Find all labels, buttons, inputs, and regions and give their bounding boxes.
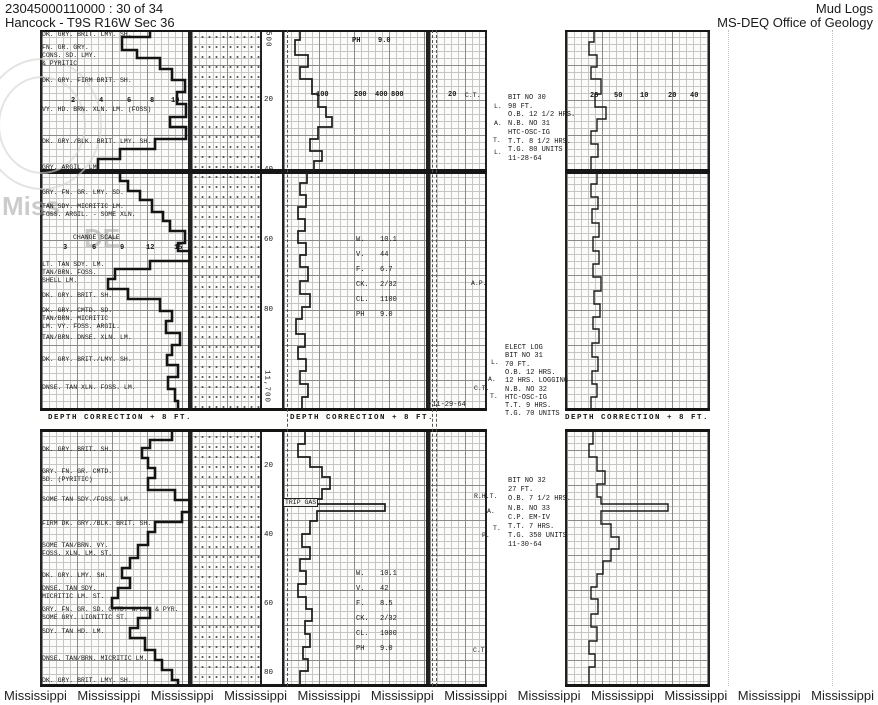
lithology-upper-curve (98, 31, 190, 408)
gas-scale-tick: 10 (171, 97, 179, 105)
ph-label: PH (352, 37, 360, 45)
bit-record-line: 11-28-64 (508, 155, 542, 163)
gas-scale-tick: 400 (375, 91, 388, 99)
gas-scale-tick: 6 (127, 97, 131, 105)
lithology-description: DK. GRY. BRIT. SH. (42, 446, 112, 453)
chromatograph-scale-tick: 20 (448, 91, 456, 99)
bit-record-line: O.B. 12 HRS. (505, 369, 555, 377)
mud-property-value: 6.7 (380, 266, 393, 274)
mud-property-label: W. (356, 236, 380, 244)
bit-record-line: HTC-OSC-IG (505, 394, 547, 402)
bit-record-line: 27 FT. (508, 486, 533, 494)
mud-property-row: W.10.1 (356, 570, 397, 578)
lithology-description: DK. GRY. BRIT. LMY. SH. (42, 31, 132, 38)
bit-record-line: ELECT LOG (505, 344, 543, 352)
mud-property-row: CK.2/32 (356, 281, 397, 289)
lithology-description: GRY. FN. GR. SD. CMTD. W/LM. & PYR. (42, 606, 179, 613)
gas-scale-tick: 12 (146, 244, 154, 252)
lithology-description: TAN/BRN. DNSE. XLN. LM. (42, 334, 132, 341)
mud-property-value: 2/32 (380, 615, 397, 623)
margin-marker: R.H.T. (474, 493, 497, 500)
mud-property-label: PH (356, 311, 380, 319)
lithology-description: SHELL LM. (42, 277, 77, 284)
bit-record-line: 12 HRS. LOGGING (505, 377, 568, 385)
lithology-description: TAN/BRN. FOSS. (42, 269, 97, 276)
date-annotation: -11-29-64 (428, 401, 466, 409)
mud-property-row: W.10.1 (356, 236, 397, 244)
log-area: DK. GRY. BRIT. LMY. SH.FN. GR. GRY.CONS.… (0, 0, 878, 705)
lithology-description: FOSS. XLN. LM. ST. (42, 550, 112, 557)
lithology-description: DK. GRY./BLK. BRIT. LMY. SH. (42, 138, 151, 145)
bit-record-line: N.B. NO 33 (508, 505, 550, 513)
lithology-description: DK. GRY. CMTD. SD. (42, 307, 112, 314)
lithology-description: GRY. FN. GR. CMTD. (42, 468, 112, 475)
depth-label: 40 (264, 166, 273, 175)
mud-property-row: V.42 (356, 585, 388, 593)
depth-correction-label: DEPTH CORRECTION + 8 FT. (565, 414, 709, 423)
mud-property-value: 8.5 (380, 600, 393, 608)
depth-correction-label: DEPTH CORRECTION + 8 FT. (290, 414, 434, 423)
gas-scale-tick: 800 (391, 91, 404, 99)
mud-property-label: F. (356, 266, 380, 274)
depth-label: 40 (264, 531, 273, 540)
depth-label: 11,700 (262, 370, 271, 403)
lithology-description: VY. HD. BRN. XLN. LM. (FOSS) (42, 106, 151, 113)
right-scale-tick: 20 (668, 92, 676, 100)
depth-label: 20 (264, 462, 273, 471)
lithology-description: SDY. TAN HD. LM. (42, 628, 104, 635)
depth-label: 80 (264, 669, 273, 678)
depth-label: 80 (264, 306, 273, 315)
lithology-description: LT. TAN SDY. LM. (42, 261, 104, 268)
bit-record-line: N.B. NO 31 (508, 120, 550, 128)
lithology-description: DK. GRY. BRIT. LMY. SH. (42, 677, 132, 684)
bit-record-line: T.T. 9 HRS. (505, 402, 551, 410)
right-scale-tick: 10 (640, 92, 648, 100)
lithology-description: DNSE. TAN/BRN. MICRITIC LM. (42, 655, 147, 662)
lithology-description: DK. GRY. FIRM BRIT. SH. (42, 77, 132, 84)
gas-scale-tick: 100 (316, 91, 329, 99)
mud-property-label: PH (356, 645, 380, 653)
lithology-description: DNSE. TAN XLN. FOSS. LM. (42, 384, 136, 391)
mud-property-value: 44 (380, 251, 388, 259)
lithology-description: FOSS. ARGIL. - SOME XLN. (42, 211, 136, 218)
bit-record-line: T.T. 8 1/2 HRS. (508, 138, 571, 146)
bit-record-line: O.B. 12 1/2 HRS. (508, 111, 575, 119)
bit-record-line: 11-30-64 (508, 541, 542, 549)
lithology-description: LM. VY. FOSS. ARGIL. (42, 323, 120, 330)
bit-record-line: N.B. NO 32 (505, 386, 547, 394)
margin-marker: T. (490, 393, 498, 400)
margin-marker: A. (488, 376, 496, 383)
mud-property-row: CK.2/32 (356, 615, 397, 623)
mud-property-row: F.8.5 (356, 600, 393, 608)
trip-gas-label: TRIP GAS (283, 498, 318, 507)
lithology-description: SD. (PYRITIC) (42, 476, 93, 483)
lithology-description: DK. GRY. BRIT. SH. (42, 292, 112, 299)
mud-property-label: CL. (356, 630, 380, 638)
gas-scale-tick: 2 (71, 97, 75, 105)
gas-scale-tick: 15 (174, 244, 182, 252)
lithology-description: DK. GRY. LMY. SH. (42, 572, 108, 579)
mud-property-label: CK. (356, 615, 380, 623)
mud-property-value: 2/32 (380, 281, 397, 289)
mud-property-value: 10.1 (380, 236, 397, 244)
right-lower-curve (589, 432, 668, 686)
mud-property-value: 10.1 (380, 570, 397, 578)
lithology-description: TAN SDY. MICRITIC LM. (42, 203, 124, 210)
lithology-description: & PYRITIC (42, 60, 77, 67)
margin-marker: C.T. (473, 647, 489, 654)
margin-marker: A. (487, 508, 495, 515)
lithology-description: SOME TAN/BRN. VY. (42, 542, 108, 549)
mud-property-row: F.6.7 (356, 266, 393, 274)
mud-property-label: CL. (356, 296, 380, 304)
mud-property-label: W. (356, 570, 380, 578)
margin-marker: C.T. (465, 92, 481, 99)
depth-correction-label: DEPTH CORRECTION + 8 FT. (48, 414, 192, 423)
mud-property-value: 9.0 (380, 645, 393, 653)
margin-marker: T. (493, 525, 501, 532)
bit-record-line: BIT NO 30 (508, 94, 546, 102)
lithology-description: GRY. ARGIL. LM. (42, 164, 101, 171)
gas-scale-tick: 8 (150, 97, 154, 105)
depth-label: 60 (264, 600, 273, 609)
bit-record-line: T.T. 7 HRS. (508, 523, 554, 531)
lithology-lower-curve (112, 432, 190, 686)
margin-marker: P. (482, 532, 490, 539)
lithology-description: DK. GRY. BRIT./LMY. SH. (42, 356, 132, 363)
margin-marker: C.T. (474, 385, 490, 392)
depth-label: 60 (264, 236, 273, 245)
margin-marker: L. (494, 149, 502, 156)
gas-upper-curve (295, 31, 332, 408)
mud-property-row: CL.1100 (356, 296, 397, 304)
margin-marker: T. (493, 137, 501, 144)
mud-property-label: V. (356, 585, 380, 593)
margin-marker: A.P. (471, 280, 487, 287)
gas-scale-tick: 6 (92, 244, 96, 252)
lithology-description: GRY. FN. GR. LMY. SD. (42, 189, 124, 196)
ph-value: 9.0 (378, 37, 391, 45)
mud-property-label: V. (356, 251, 380, 259)
bit-record-line: T.G. 350 UNITS (508, 532, 567, 540)
bit-record-line: C.P. EM-IV (508, 514, 550, 522)
mud-property-label: CK. (356, 281, 380, 289)
mud-property-row: V.44 (356, 251, 388, 259)
bit-record-line: 98 FT. (508, 103, 533, 111)
lithology-description: SOME GRY. LIGNITIC ST. (42, 614, 128, 621)
bit-record-line: O.B. 7 1/2 HRS. (508, 495, 571, 503)
lithology-description: DNSE. TAN SDY. (42, 585, 97, 592)
margin-marker: A. (494, 120, 502, 127)
bit-record-line: BIT NO 31 (505, 352, 543, 360)
margin-marker: L. (494, 103, 502, 110)
gas-scale-tick: 4 (99, 97, 103, 105)
bit-record-line: HTC-OSC-IG (508, 129, 550, 137)
lithology-description: FIRM DK. GRY./BLK. BRIT. SH. (42, 520, 151, 527)
right-scale-tick: 25 (590, 92, 598, 100)
lithology-description: SOME TAN SDY./FOSS. LM. (42, 496, 132, 503)
gas-scale-tick: 3 (63, 244, 67, 252)
mud-property-row: PH9.0 (356, 645, 393, 653)
mud-property-value: 1000 (380, 630, 397, 638)
bit-record-line: 70 FT. (505, 361, 530, 369)
gas-scale-tick: 9 (120, 244, 124, 252)
right-scale-tick: 40 (690, 92, 698, 100)
right-upper-curve (589, 31, 606, 408)
lithology-description: FN. GR. GRY. (42, 44, 89, 51)
lithology-description: MICRITIC LM. ST. (42, 593, 104, 600)
bit-record-line: BIT NO 32 (508, 477, 546, 485)
mud-property-label: F. (356, 600, 380, 608)
mud-property-value: 9.0 (380, 311, 393, 319)
bit-record-line: T.G. 80 UNITS (508, 146, 563, 154)
mud-property-row: CL.1000 (356, 630, 397, 638)
gas-scale-tick: 200 (354, 91, 367, 99)
change-scale-note: CHANGE SCALE (73, 234, 120, 241)
lithology-description: TAN/BRN. MICRITIC (42, 315, 108, 322)
mud-property-value: 42 (380, 585, 388, 593)
right-scale-tick: 50 (614, 92, 622, 100)
mud-property-row: PH9.0 (356, 311, 393, 319)
lithology-description: CONS. SD. LMY. (42, 52, 97, 59)
bit-record-line: T.G. 70 UNITS (505, 410, 560, 418)
depth-label: 20 (264, 96, 273, 105)
margin-marker: L. (491, 359, 499, 366)
mud-property-value: 1100 (380, 296, 397, 304)
depth-label: 500 (263, 31, 272, 48)
